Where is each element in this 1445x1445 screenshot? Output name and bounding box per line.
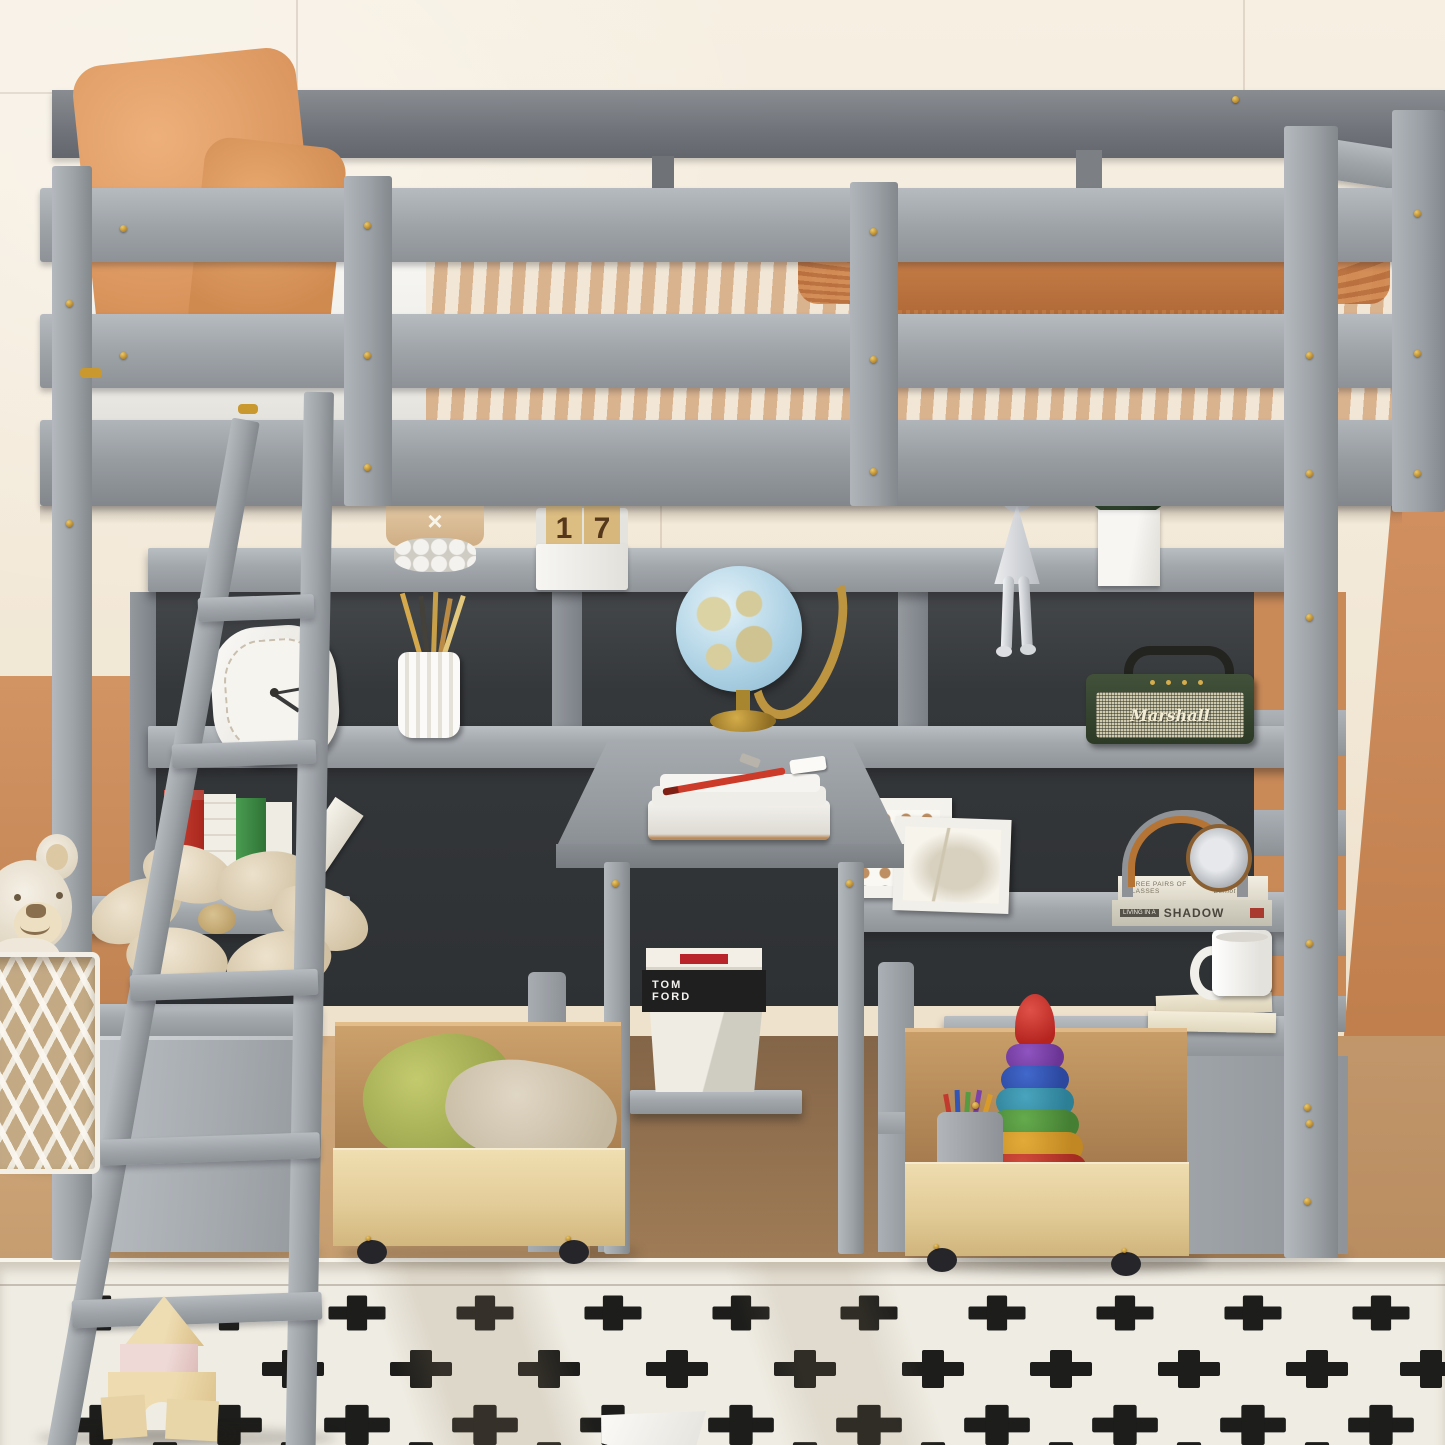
speaker-knob xyxy=(1198,680,1203,685)
guard-rail-bottom xyxy=(40,314,1402,388)
gold-screw xyxy=(1304,1198,1311,1205)
pencil-cup xyxy=(392,592,472,740)
ladder-hook xyxy=(238,404,258,414)
mug-rim xyxy=(1216,932,1268,942)
speaker-grille: Marshall xyxy=(1096,692,1244,738)
shelf-divider xyxy=(898,592,928,728)
gold-screw xyxy=(66,520,73,527)
book-shadow-title: SHADOW xyxy=(1164,906,1225,920)
drawer-wheel xyxy=(1111,1252,1141,1276)
loft-bed-product-photo: × Wednesday November 1 7 xyxy=(0,0,1445,1445)
bear-smile xyxy=(20,916,50,935)
rail-connector xyxy=(1076,150,1102,192)
teddy-bear xyxy=(0,828,110,1168)
photo-frame-horse-print xyxy=(903,826,1002,903)
gold-screw xyxy=(870,228,877,235)
gold-screw xyxy=(1304,1104,1311,1111)
gold-screw xyxy=(1306,614,1313,621)
desk-leg xyxy=(838,862,864,1254)
storage-drawer-left xyxy=(333,1018,625,1268)
underdesk-book-band xyxy=(680,954,728,964)
sharpener xyxy=(739,753,761,768)
bear-eye xyxy=(14,894,21,901)
gold-screw xyxy=(1414,350,1421,357)
book-shadow-accent xyxy=(1250,908,1264,918)
bed-frame-shadow xyxy=(40,506,1402,524)
flower-center xyxy=(198,904,236,934)
bunny-foot xyxy=(996,646,1012,657)
marshall-speaker: Marshall xyxy=(1086,646,1254,746)
gold-screw xyxy=(120,352,127,359)
gold-screw xyxy=(1414,210,1421,217)
storage-box-white xyxy=(650,1012,762,1092)
throw-blanket-fold xyxy=(856,258,1304,316)
gold-screw xyxy=(120,225,127,232)
block-pink xyxy=(120,1344,198,1374)
corner-post-right xyxy=(1392,110,1445,512)
underdesk-book-white xyxy=(646,948,762,970)
globe-stand xyxy=(710,710,776,732)
ladder-rung xyxy=(198,594,315,622)
gold-screw xyxy=(364,464,371,471)
bear-eye xyxy=(56,892,63,899)
gold-screw xyxy=(1306,1120,1313,1127)
gold-screw xyxy=(870,356,877,363)
gold-screw xyxy=(1414,470,1421,477)
block-roof xyxy=(124,1296,204,1346)
ladder-hook xyxy=(80,368,102,378)
gold-screw xyxy=(1306,352,1313,359)
cabinet-top-board xyxy=(84,1004,320,1038)
notebook-stack xyxy=(644,756,834,844)
headphone-earcup xyxy=(1186,824,1252,892)
gold-screw xyxy=(1306,470,1313,477)
photo-frame-horse xyxy=(892,816,1011,914)
gold-bolt xyxy=(366,1236,371,1241)
stacker-cone xyxy=(1015,994,1055,1048)
crayon xyxy=(964,1092,971,1114)
gold-screw xyxy=(1232,96,1239,103)
bed-post-right xyxy=(1284,126,1338,1258)
tomford-book: TOM FORD xyxy=(642,970,766,1012)
gold-screw xyxy=(1306,940,1313,947)
bead-cluster-bottom xyxy=(394,538,476,572)
speaker-knob xyxy=(1150,680,1155,685)
notebook xyxy=(648,800,830,840)
gold-bolt xyxy=(566,1236,571,1241)
bunny-leg xyxy=(1018,576,1033,650)
wooden-blocks xyxy=(100,1296,230,1444)
wire-basket xyxy=(0,952,100,1174)
gold-screw xyxy=(364,352,371,359)
gold-screw xyxy=(66,300,73,307)
block-square xyxy=(165,1399,219,1442)
pencil-cup-body xyxy=(398,652,460,738)
gold-screw xyxy=(612,880,619,887)
gold-bolt xyxy=(934,1244,939,1249)
drawer-wheel xyxy=(927,1248,957,1272)
tomford-line1: TOM xyxy=(652,979,766,991)
gold-screw xyxy=(846,880,853,887)
drawer-front xyxy=(333,1148,625,1246)
drawer-wheel xyxy=(559,1240,589,1264)
bunny-foot xyxy=(1020,644,1036,655)
gold-screw xyxy=(870,468,877,475)
shelf-divider xyxy=(552,592,582,728)
gold-screw xyxy=(972,1102,979,1109)
gold-screw xyxy=(364,222,371,229)
headphones xyxy=(1118,802,1268,894)
rail-connector xyxy=(652,156,674,192)
mug xyxy=(1190,930,1282,1000)
storage-drawer-right xyxy=(905,1024,1189,1274)
bunny-leg xyxy=(1001,576,1015,652)
drawer-wheel xyxy=(357,1240,387,1264)
globe xyxy=(672,556,828,738)
speaker-knob xyxy=(1182,680,1187,685)
underdesk-shelf xyxy=(630,1090,802,1114)
bunny-body xyxy=(990,504,1044,584)
drawer-front xyxy=(905,1162,1189,1256)
book-shadow: LIVING IN A SHADOW xyxy=(1112,900,1272,926)
ladder-rung xyxy=(172,739,317,768)
eraser xyxy=(789,756,827,775)
plant-pot xyxy=(1098,510,1160,586)
block-square xyxy=(101,1395,148,1440)
calendar-holder-front xyxy=(536,544,628,590)
book-shadow-prefix: LIVING IN A xyxy=(1120,909,1159,917)
speaker-logo: Marshall xyxy=(1130,706,1210,725)
guard-rail-top xyxy=(40,188,1402,262)
tomford-line2: FORD xyxy=(652,991,766,1003)
crayon xyxy=(955,1090,961,1114)
speaker-knob xyxy=(1166,680,1171,685)
gold-bolt xyxy=(1122,1248,1127,1253)
